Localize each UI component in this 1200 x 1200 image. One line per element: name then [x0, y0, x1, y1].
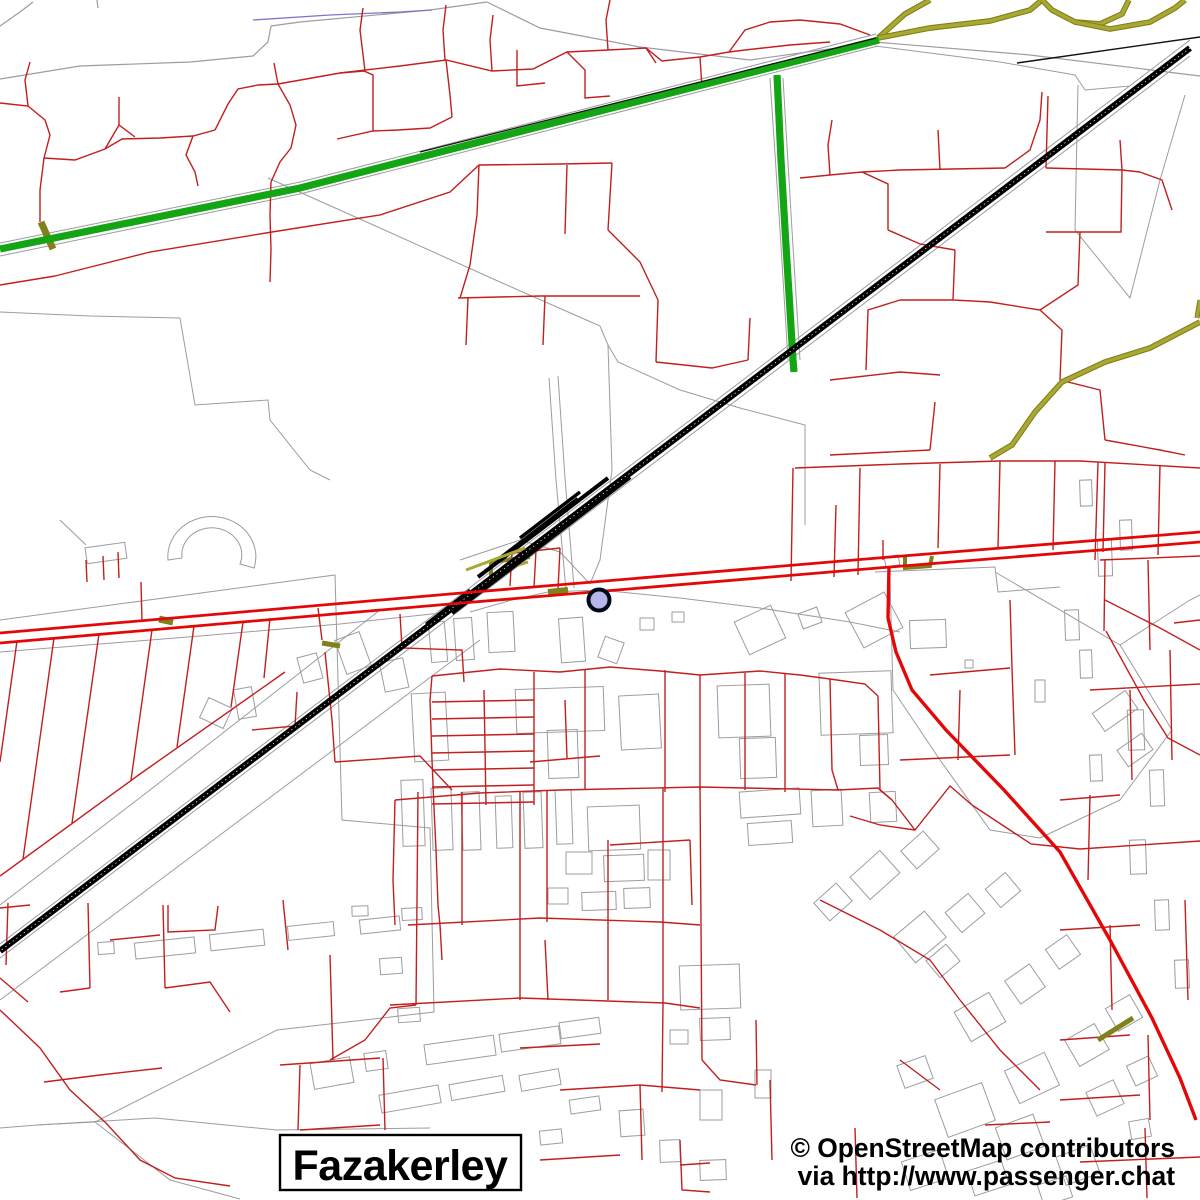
svg-text:Fazakerley: Fazakerley	[293, 1142, 509, 1190]
svg-text:© OpenStreetMap contributors: © OpenStreetMap contributors	[790, 1133, 1175, 1163]
svg-text:via http://www.passenger.chat: via http://www.passenger.chat	[798, 1161, 1176, 1191]
